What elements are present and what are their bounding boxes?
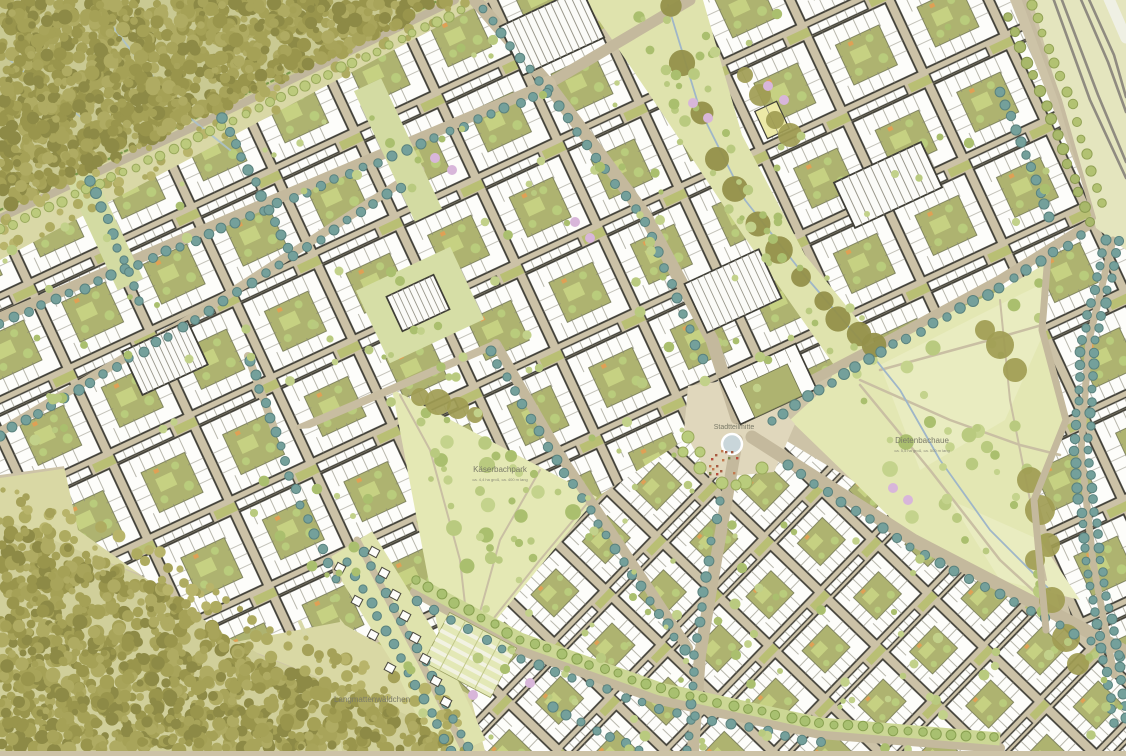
svg-text:Langmattenwäldchen: Langmattenwäldchen [334,695,410,704]
svg-text:Stadtteilmitte: Stadtteilmitte [714,424,755,431]
svg-text:ca. 4,4 ha groß, ca. 400 m lan: ca. 4,4 ha groß, ca. 400 m lang [472,477,527,482]
svg-text:Dietenbachaue: Dietenbachaue [895,436,949,445]
svg-text:ca. 5,5 ha groß, ca. 500 m lan: ca. 5,5 ha groß, ca. 500 m lang [894,448,949,453]
svg-text:Käserbachpark: Käserbachpark [473,465,528,474]
